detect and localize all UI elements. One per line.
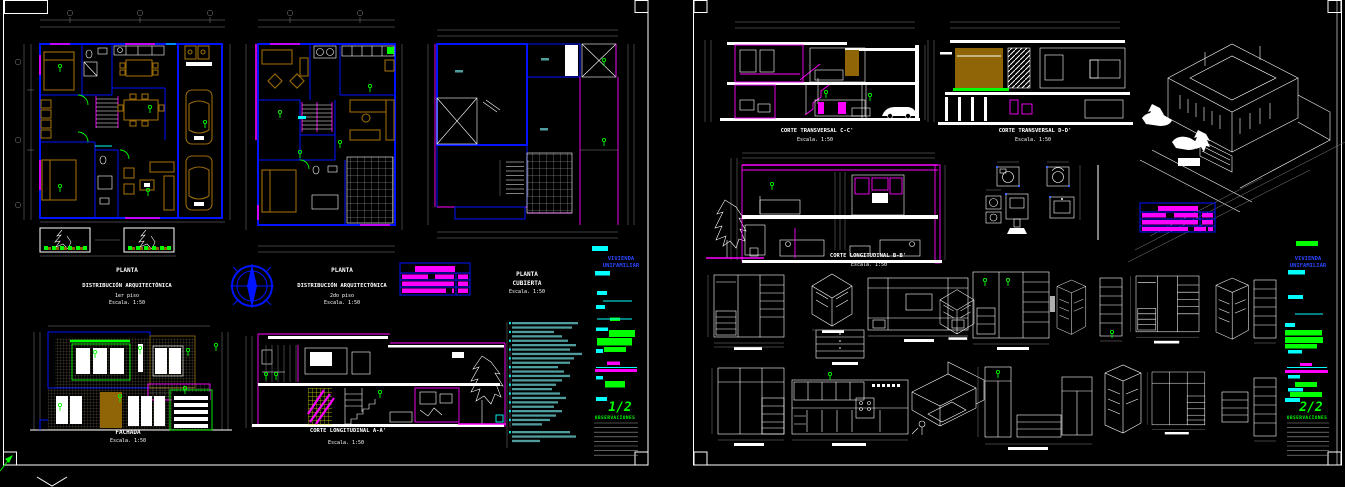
section-c-scale: Escala. 1:50 bbox=[797, 137, 833, 143]
sheet-corner-box bbox=[5, 1, 48, 14]
sheet-number: 1/2 bbox=[608, 400, 632, 415]
plan2-title: PLANTA bbox=[331, 267, 353, 274]
roof-plan bbox=[428, 30, 634, 238]
plan1-subtitle: DISTRIBUCIÓN ARQUITECTÓNICA bbox=[82, 282, 172, 289]
facade-title: FACHADA bbox=[115, 429, 141, 436]
section-c-drawing bbox=[705, 22, 925, 122]
left-sheet: PLANTA DISTRIBUCIÓN ARQUITECTÓNICA 1er p… bbox=[4, 0, 649, 465]
observation-lines-right bbox=[1287, 423, 1329, 455]
kitchen-elevation-detail bbox=[792, 372, 908, 446]
section-d-brown-wall bbox=[955, 48, 1003, 90]
plan2-level: 2do piso bbox=[330, 293, 354, 299]
facade-elevation bbox=[30, 326, 232, 430]
kitchen-isometric-detail bbox=[912, 362, 984, 435]
section-c-title: CORTE TRANSVERSAL C-C' bbox=[781, 128, 854, 134]
section-b-scale: Escala. 1:50 bbox=[851, 262, 887, 268]
observations-label: OBSERVACIONES bbox=[595, 415, 635, 421]
ucs-arrow-icon bbox=[0, 455, 13, 471]
section-b-title: CORTE LONGITUDINAL B-B' bbox=[830, 253, 906, 259]
kitchen-green-item bbox=[387, 47, 394, 54]
section-d-title: CORTE TRANSVERSAL D-D' bbox=[999, 128, 1072, 134]
observation-lines bbox=[594, 423, 638, 455]
project-name-line1: VIVIENDA bbox=[608, 256, 635, 262]
facade-scale: Escala. 1:50 bbox=[110, 438, 146, 444]
notes-list bbox=[507, 322, 582, 448]
floor-plan-first bbox=[15, 10, 230, 256]
planter-right bbox=[124, 228, 174, 252]
right-sheet: CORTE TRANSVERSAL C-C' Escala. 1:50 CORT… bbox=[694, 0, 1345, 465]
project-name-line2: UNIFAMILIAR bbox=[603, 263, 640, 269]
stair-plan1 bbox=[96, 96, 118, 128]
plan1-level: 1er piso bbox=[115, 293, 139, 299]
tile-grid bbox=[347, 157, 393, 223]
title-block-table bbox=[400, 263, 470, 295]
roof-subtitle: CUBIERTA bbox=[513, 280, 542, 287]
cabinet-details-row1 bbox=[708, 272, 1276, 365]
roof-title: PLANTA bbox=[516, 271, 538, 278]
project-name-line2-right: UNIFAMILIAR bbox=[1290, 263, 1327, 269]
project-column-right: VIVIENDA UNIFAMILIAR 2/2 OBSERVACIONES bbox=[1285, 241, 1329, 455]
floor-plan-second bbox=[246, 10, 402, 252]
pan-chevron-icon bbox=[37, 477, 67, 486]
roof-scale: Escala. 1:50 bbox=[509, 289, 545, 295]
project-name-line1-right: VIVIENDA bbox=[1295, 256, 1322, 262]
section-d-scale: Escala. 1:50 bbox=[1015, 137, 1051, 143]
plan1-title: PLANTA bbox=[116, 267, 138, 274]
section-b-drawing bbox=[706, 153, 945, 263]
fixture-details bbox=[986, 162, 1098, 240]
observations-label-right: OBSERVACIONES bbox=[1287, 415, 1327, 421]
cad-drawing: PLANTA DISTRIBUCIÓN ARQUITECTÓNICA 1er p… bbox=[0, 0, 1345, 487]
plan2-scale: Escala. 1:50 bbox=[324, 300, 360, 306]
title-block-table-right bbox=[1140, 203, 1215, 232]
cad-canvas: PLANTA DISTRIBUCIÓN ARQUITECTÓNICA 1er p… bbox=[0, 0, 1345, 487]
section-a-scale: Escala. 1:50 bbox=[328, 440, 364, 446]
sheet-number-right: 2/2 bbox=[1298, 400, 1323, 415]
pergola-grid bbox=[527, 153, 572, 213]
plan1-scale: Escala. 1:50 bbox=[109, 300, 145, 306]
project-column-left: VIVIENDA UNIFAMILIAR 1/2 OBSERVACIONES bbox=[592, 246, 640, 455]
section-a-drawing bbox=[246, 334, 510, 428]
north-compass-icon bbox=[230, 264, 274, 308]
plan2-subtitle: DISTRIBUCIÓN ARQUITECTÓNICA bbox=[297, 282, 387, 289]
planter-left bbox=[40, 228, 90, 252]
section-a-title: CORTE LONGITUDINAL A-A' bbox=[310, 428, 386, 434]
cabinet-details-row2 bbox=[712, 330, 1276, 450]
